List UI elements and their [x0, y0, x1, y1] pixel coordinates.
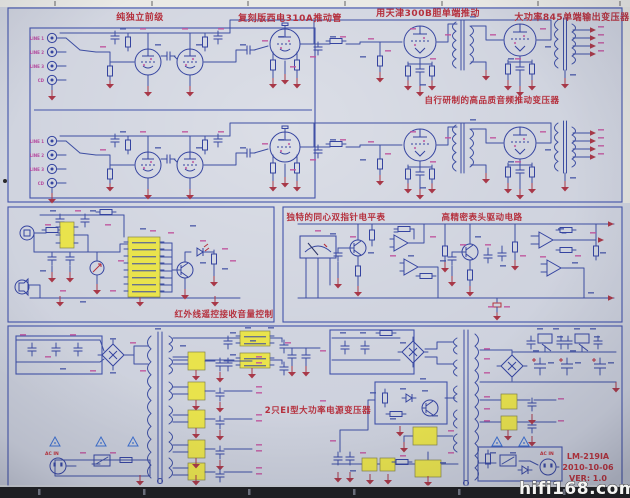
label-mark: [256, 414, 262, 416]
label-mark: [430, 236, 436, 238]
label-mark: [80, 301, 86, 303]
label-mark: [545, 46, 551, 48]
label-mark: [385, 50, 391, 52]
label-mark: [485, 244, 491, 246]
jack-label: LINE 1: [30, 36, 45, 41]
label-mark: [50, 210, 56, 212]
label-mark: [508, 58, 514, 60]
label-mark: [484, 348, 490, 350]
label-mark: [500, 265, 506, 267]
label-mark: [350, 236, 356, 238]
label-mark: [285, 342, 291, 344]
model-number: LM-219IA: [567, 452, 610, 461]
label-mark: [118, 260, 124, 262]
label-mark: [190, 225, 196, 227]
label-mark: [340, 36, 346, 38]
label-mark: [278, 36, 284, 38]
label-mark: [310, 56, 316, 58]
section-label-remote-volume: 红外线遥控接收音量控制: [174, 309, 273, 320]
section-label-power-drive: 用天津300B胆单端推动: [375, 7, 480, 19]
label-mark: [140, 28, 146, 30]
label-mark: [100, 46, 106, 48]
label-mark: [445, 34, 451, 36]
label-mark: [548, 362, 554, 364]
ic-block: [380, 458, 395, 471]
section-label-meter-driver: 高精密表头驱动电路: [441, 212, 522, 223]
ic-block: [501, 394, 517, 409]
label-mark: [432, 415, 438, 417]
label-mark: [422, 390, 428, 392]
label-mark: [218, 28, 224, 30]
label-mark: [350, 470, 356, 472]
label-mark: [588, 292, 594, 294]
label-mark: [256, 467, 262, 469]
jack-label: LINE 3: [30, 167, 45, 172]
section-label-driver-tube: 复刻版西电310A推动管: [237, 12, 342, 24]
label-mark: [558, 420, 564, 422]
label-mark: [400, 455, 406, 457]
label-mark: [475, 236, 481, 238]
label-mark: [256, 356, 262, 358]
label-mark: [553, 328, 559, 330]
label-mark: [400, 342, 406, 344]
label-mark: [572, 262, 578, 264]
label-mark: [598, 42, 604, 44]
label-mark: [70, 334, 76, 336]
label-mark: [360, 56, 366, 58]
label-mark: [484, 358, 490, 360]
label-mark: [368, 38, 374, 40]
label-mark: [420, 378, 426, 380]
label-mark: [200, 262, 206, 264]
label-mark: [20, 334, 26, 336]
label-mark: [200, 240, 206, 242]
ic-block: [60, 222, 74, 248]
label-mark: [360, 332, 366, 334]
ic-block: [128, 237, 160, 297]
label-mark: [558, 398, 564, 400]
label-mark: [484, 396, 490, 398]
photo-artifact-dot: [3, 179, 7, 183]
label-mark: [230, 354, 236, 356]
ruler-strip: [0, 0, 630, 7]
label-mark: [168, 232, 174, 234]
label-mark: [256, 420, 262, 422]
label-mark: [222, 248, 228, 250]
ic-block: [188, 410, 205, 428]
label-mark: [598, 50, 604, 52]
label-mark: [150, 230, 156, 232]
label-mark: [182, 28, 188, 30]
label-mark: [262, 40, 268, 42]
label-mark: [75, 210, 81, 212]
label-mark: [598, 34, 604, 36]
label-mark: [510, 452, 516, 454]
label-mark: [256, 362, 262, 364]
label-mark: [320, 400, 326, 402]
label-mark: [410, 28, 416, 30]
label-mark: [490, 452, 496, 454]
label-mark: [105, 224, 111, 226]
label-mark: [460, 244, 466, 246]
label-mark: [537, 328, 543, 330]
label-mark: [504, 306, 510, 308]
schematic-photo: 纯独立前级 复刻版西电310A推动管 用天津300B胆单端推动 大功率845单端…: [0, 0, 630, 498]
label-mark: [368, 252, 374, 254]
label-mark: [330, 440, 336, 442]
label-mark: [60, 368, 66, 370]
label-mark: [430, 58, 436, 60]
label-mark: [256, 386, 262, 388]
label-mark: [60, 290, 66, 292]
label-mark: [290, 66, 296, 68]
label-mark: [110, 372, 116, 374]
label-mark: [245, 327, 251, 329]
label-mark: [360, 452, 366, 454]
label-mark: [370, 392, 376, 394]
label-mark: [590, 328, 596, 330]
ic-block: [188, 352, 205, 370]
label-mark: [90, 210, 96, 212]
label-mark: [448, 452, 454, 454]
section-label-vu-meter: 独特的同心双指针电平表: [285, 212, 385, 223]
label-mark: [598, 26, 604, 28]
section-label-power-transformer: 2只EI型大功率电源变压器: [265, 405, 371, 416]
label-mark: [110, 452, 116, 454]
schematic-canvas: 纯独立前级 复刻版西电310A推动管 用天津300B胆单端推动 大功率845单端…: [0, 0, 630, 498]
label-mark: [330, 233, 336, 235]
label-mark: [570, 74, 576, 76]
label-mark: [590, 232, 596, 234]
date: 2010-10-06: [562, 463, 614, 472]
jack-label: CD: [38, 78, 45, 83]
ic-block: [501, 416, 517, 430]
ic-block: [415, 460, 441, 477]
label-mark: [484, 408, 490, 410]
jack-label: CD: [38, 181, 45, 186]
watermark: hifi168.com: [519, 479, 630, 498]
label-mark: [250, 340, 256, 342]
label-mark: [440, 462, 446, 464]
label-mark: [594, 336, 600, 338]
label-mark: [575, 362, 581, 364]
label-mark: [448, 430, 454, 432]
label-mark: [440, 260, 446, 262]
label-mark: [256, 444, 262, 446]
jack-label: LINE 2: [30, 153, 45, 158]
jack-label: LINE 3: [30, 64, 45, 69]
ac-in-label-left: AC IN: [45, 451, 59, 457]
label-mark: [520, 255, 526, 257]
label-mark: [45, 224, 51, 226]
label-mark: [390, 418, 396, 420]
ic-block: [413, 427, 437, 445]
label-mark: [268, 327, 274, 329]
label-mark: [230, 332, 236, 334]
label-mark: [608, 362, 614, 364]
section-label-preamp: 纯独立前级: [116, 11, 164, 23]
ic-block: [188, 382, 205, 400]
label-mark: [155, 44, 161, 46]
label-mark: [320, 350, 326, 352]
label-mark: [222, 268, 228, 270]
paper-edge-right: [623, 7, 630, 203]
label-mark: [155, 328, 161, 330]
label-mark: [558, 228, 564, 230]
label-mark: [110, 338, 116, 340]
label-mark: [196, 44, 202, 46]
label-mark: [256, 450, 262, 452]
label-mark: [420, 84, 426, 86]
jack-label: LINE 1: [30, 139, 45, 144]
label-mark: [400, 388, 406, 390]
label-mark: [120, 28, 126, 30]
jack-label: LINE 2: [30, 50, 45, 55]
label-mark: [484, 372, 490, 374]
label-mark: [140, 370, 146, 372]
ic-block: [188, 440, 205, 458]
section-label-output-transformer: 大功率845单端输出变压器: [514, 11, 630, 23]
label-mark: [45, 356, 51, 358]
label-mark: [256, 473, 262, 475]
label-mark: [540, 256, 546, 258]
label-mark: [315, 230, 321, 232]
label-mark: [515, 58, 521, 60]
label-mark: [408, 255, 414, 257]
label-mark: [80, 452, 86, 454]
label-mark: [240, 44, 246, 46]
label-mark: [110, 290, 116, 292]
label-mark: [90, 370, 96, 372]
label-mark: [340, 332, 346, 334]
label-mark: [40, 270, 46, 272]
label-mark: [130, 342, 136, 344]
label-mark: [557, 336, 563, 338]
label-mark: [390, 255, 396, 257]
section-label-interstage: 自行研制的高品质音频推动变压器: [424, 95, 559, 106]
label-mark: [140, 228, 146, 230]
label-mark: [180, 345, 186, 347]
label-mark: [484, 420, 490, 422]
label-mark: [533, 350, 539, 352]
ic-block: [362, 458, 377, 471]
label-mark: [330, 36, 336, 38]
label-mark: [600, 252, 606, 254]
label-mark: [570, 350, 576, 352]
label-mark: [575, 255, 581, 257]
label-mark: [230, 260, 236, 262]
label-mark: [256, 392, 262, 394]
ac-in-label-right: AC IN: [540, 451, 554, 457]
label-mark: [540, 28, 546, 30]
label-mark: [574, 328, 580, 330]
label-mark: [488, 306, 494, 308]
label-mark: [490, 34, 496, 36]
